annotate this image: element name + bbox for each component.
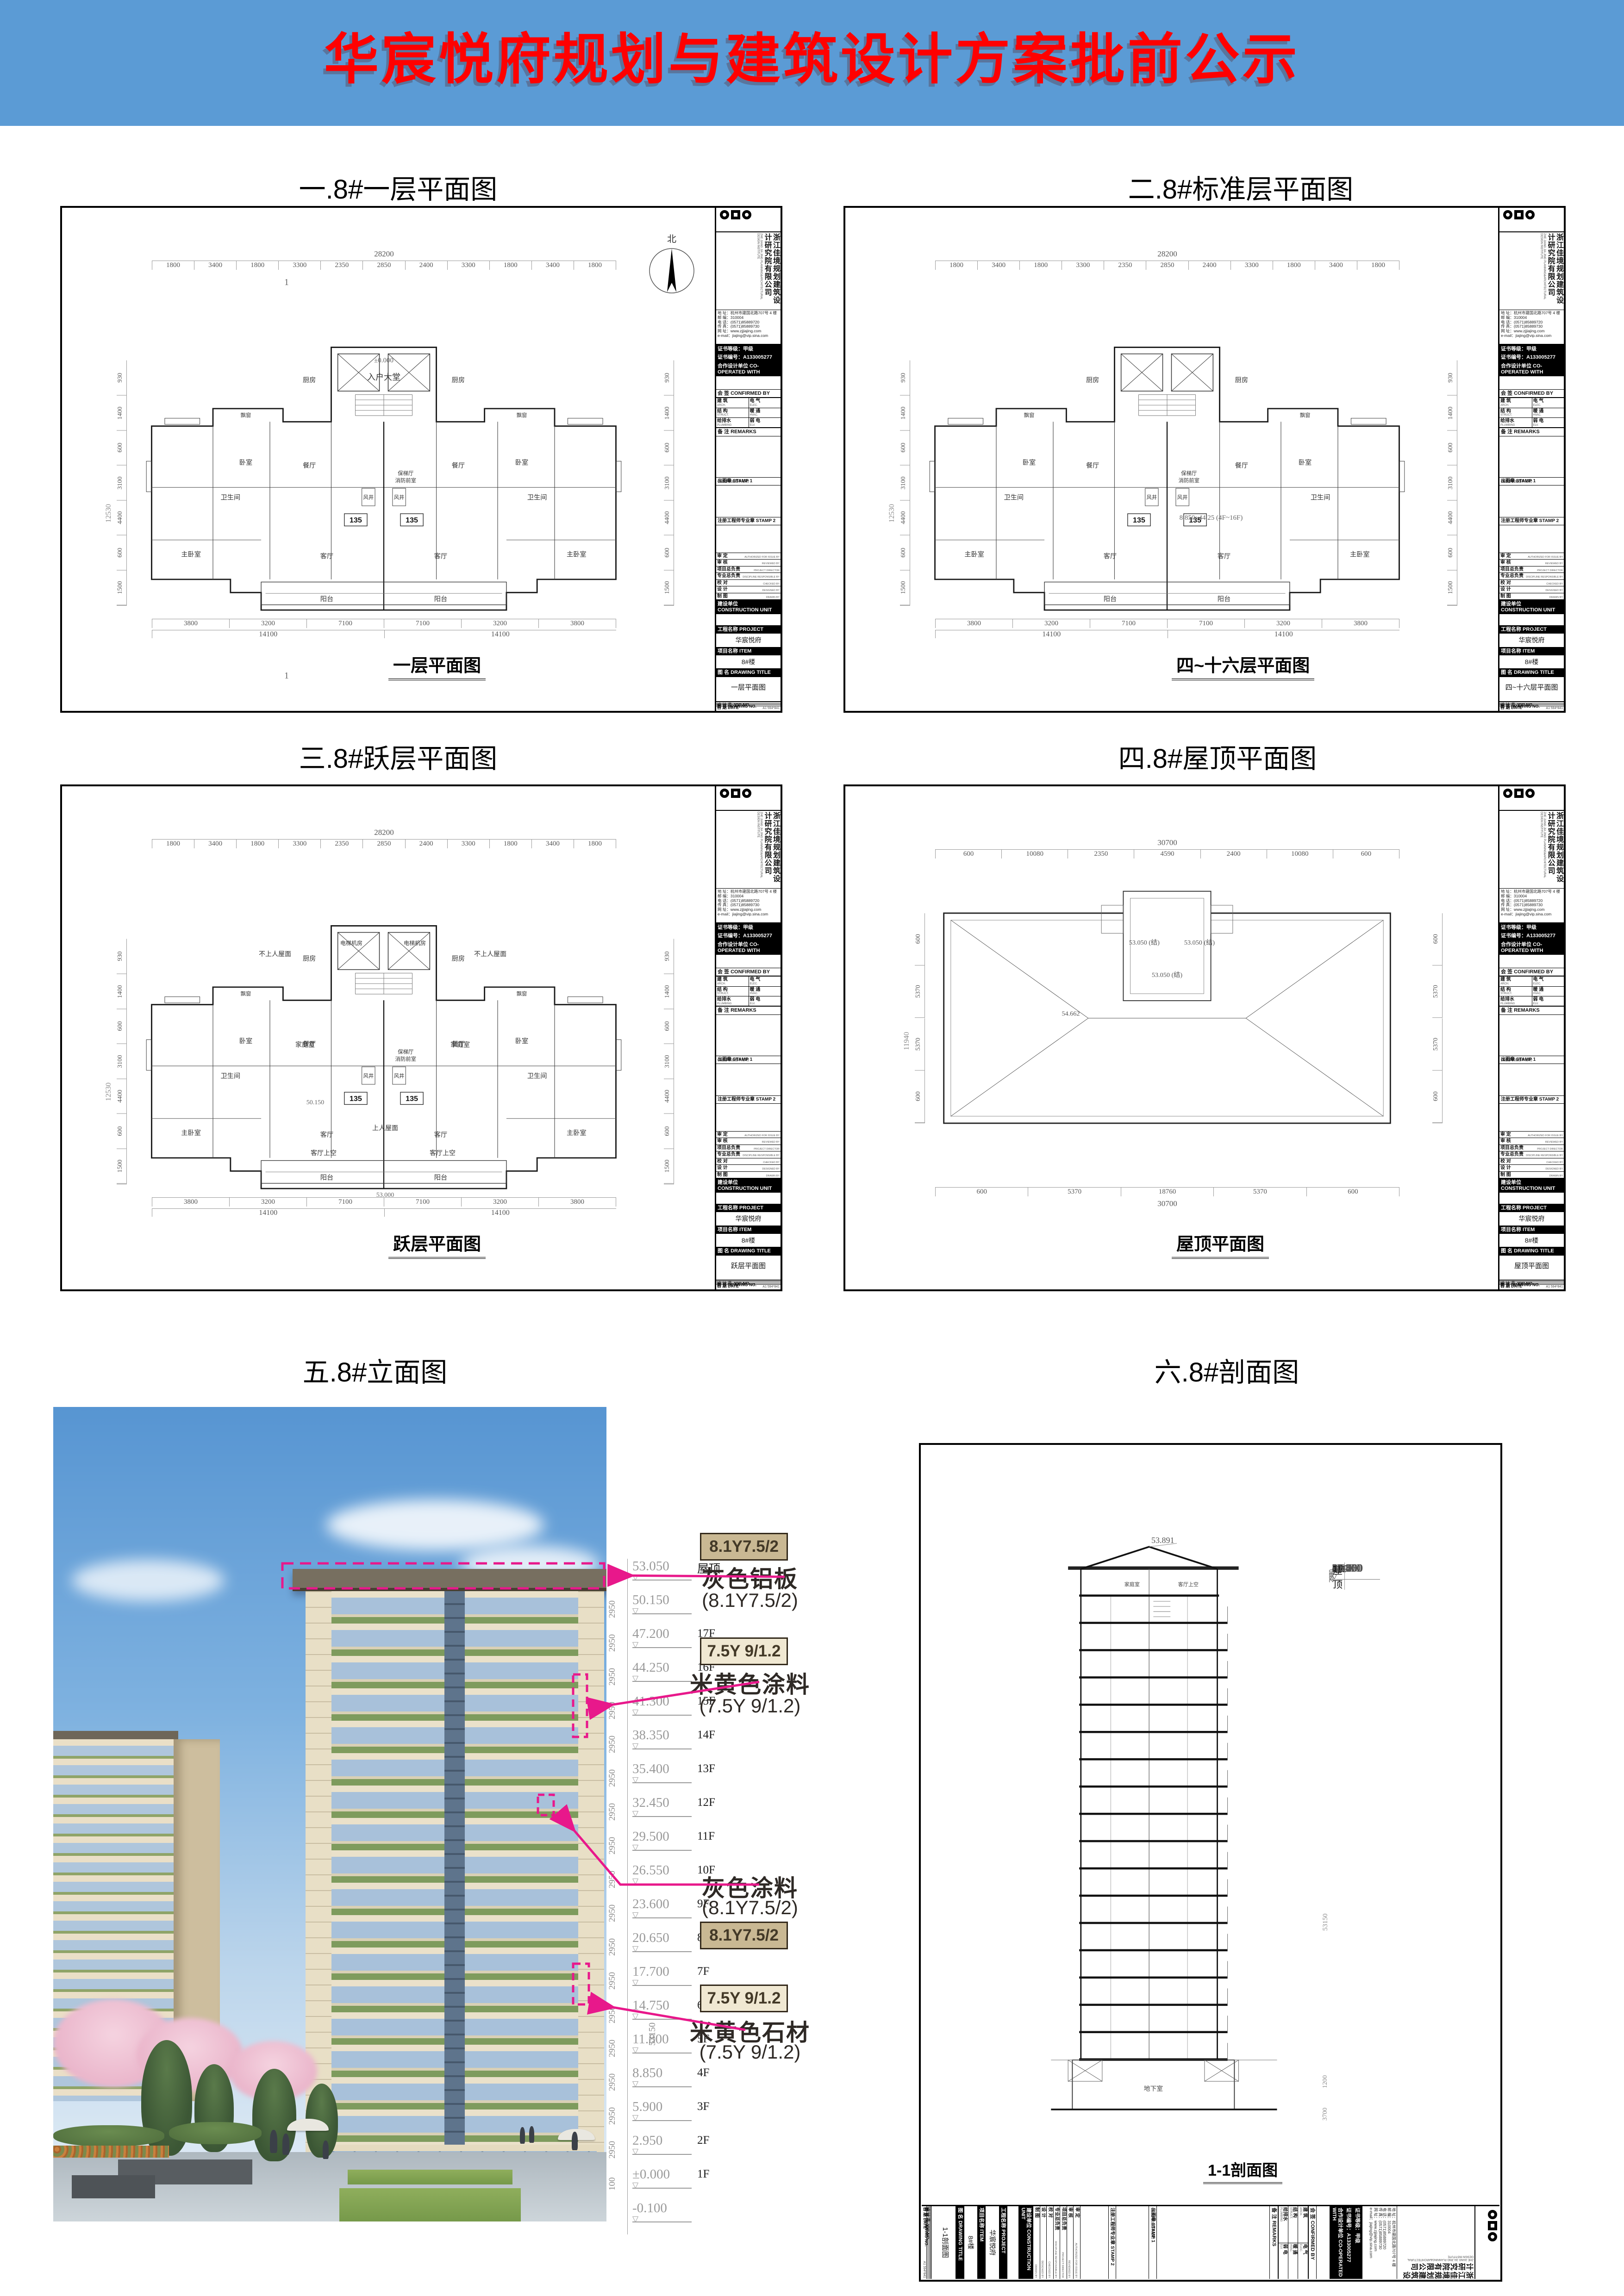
company-logo-icon [716, 208, 781, 232]
floor-height-dim: 2950 [607, 2099, 628, 2133]
company-name: 浙江佳境规划建筑设计研究院有限公司 ZHE JIANG JIA JING PLA… [1397, 2206, 1474, 2279]
material-code: (7.5Y 9/1.2) [667, 2041, 833, 2063]
person [270, 2130, 277, 2153]
floor-height-dim: 2950 [607, 1728, 628, 1761]
project-value: 华宸悦府 [1499, 1212, 1564, 1225]
drawing-title-value: 1-1剖面图 [931, 2206, 956, 2279]
title-block: 浙江佳境规划建筑设计研究院有限公司 ZHE JIANG JIA JING PLA… [1498, 208, 1564, 711]
approval-row: 设 计DESIGNED BY [716, 1165, 781, 1172]
approval-table: 审 定AUTHORIZED FOR ISSUE BY审 核REVIEWED BY… [1499, 1131, 1564, 1179]
level-value: 5.900 [632, 2099, 692, 2121]
elevator-machine-room: 电梯机房 [328, 939, 375, 947]
project-label: 工程名称 PROJECT [999, 2206, 1008, 2279]
coop-label: 合作设计单位 CO-OPERATED WITH [1499, 940, 1564, 955]
sheet-panel-2: 28200 1800340018003300235028502400330018… [843, 206, 1566, 713]
cert-grade: 证书等级：甲级 [1499, 345, 1564, 354]
approval-row: 设 计DESIGNED BY [1499, 586, 1564, 593]
confirm-cell: 暖 通HVAC. [749, 408, 781, 417]
floor-height-dim: 2950 [607, 1998, 628, 2032]
project-value: 华宸悦府 [986, 2206, 999, 2279]
approval-row: 设 计DESIGNED BY [1499, 1165, 1564, 1172]
sheet-footer: 设 计 号 JOB NO. 图 号 DRAWING NO. 日 期 DATE [716, 701, 781, 706]
confirm-cell: 给排水PLUMBING [1499, 417, 1532, 427]
svg-text:客厅上空: 客厅上空 [1178, 1581, 1199, 1587]
person [572, 2132, 578, 2150]
confirm-cell: 暖 通HVAC. [749, 986, 781, 996]
remarks-label: 备 注 REMARKS [1499, 428, 1564, 436]
remarks-label: 备 注 REMARKS [1269, 2206, 1278, 2279]
construction-unit-label: 建设单位 CONSTRUCTION UNIT [1499, 1178, 1564, 1193]
level-row: 2950 8.850 4F [607, 2066, 746, 2099]
floor-height-dim: 2950 [607, 1863, 628, 1897]
drawing-title-value: 跃层平面图 [716, 1256, 781, 1280]
approval-row: 审 核REVIEWED BY [716, 1138, 781, 1145]
floor-height-dim: 2950 [607, 1930, 628, 1964]
drawing-title-label: 图 名 DRAWING TITLE [956, 2206, 964, 2279]
section-drawing: 家庭室 客厅上空 地下室 [1004, 1514, 1328, 2137]
project-label: 工程名称 PROJECT [716, 1204, 781, 1213]
construction-unit-label: 建设单位 CONSTRUCTION UNIT [1018, 2206, 1033, 2279]
level-row: 2950 5.900 3F [607, 2099, 746, 2133]
no-access-roof: 不上人屋面 [245, 949, 305, 958]
approval-row: 审 核REVIEWED BY [1067, 2206, 1074, 2279]
page-title: 华宸悦府规划与建筑设计方案批前公示 [0, 0, 1624, 126]
cert-no: 证书编号：A133005277 [716, 353, 781, 362]
level-value: -0.100 [1332, 1562, 1380, 1580]
drawing-title-value: 四~十六层平面图 [1499, 677, 1564, 701]
company-contact: 地 址：杭州市建国北路707号 4 楼邮 编：310004 电 话：(0571)… [716, 310, 781, 345]
floor-tag: 12F [697, 1795, 715, 1809]
approval-row: 制 图DRAWN BY [1033, 2206, 1040, 2279]
confirm-cell: 给排水PLUMBING [716, 417, 749, 427]
roof-slab [293, 1569, 606, 1591]
remarks-label: 备 注 REMARKS [1499, 1006, 1564, 1015]
confirm-cell: 结 构STRUCT. [716, 408, 749, 417]
floor-height-dim: 2950 [607, 1660, 628, 1694]
sheet-panel-1: 28200 1800340018003300235028502400330018… [60, 206, 782, 713]
company-logo-icon [1499, 208, 1564, 232]
sheet-panel-6: 家庭室 客厅上空 地下室 53.891 2900 53.050 屋顶 2950 … [919, 1443, 1502, 2282]
floor-height-dim [607, 2201, 628, 2234]
approval-row: 审 定AUTHORIZED FOR ISSUE BY [716, 1132, 781, 1139]
floor-tag: 13F [697, 1761, 715, 1775]
confirm-cell: 弱 电ELV. [1532, 996, 1564, 1006]
cloud [326, 1500, 544, 1550]
rotated-title-block: 浙江佳境规划建筑设计研究院有限公司 ZHE JIANG JIA JING PLA… [922, 2205, 1499, 2279]
item-value: 8#楼 [1499, 655, 1564, 668]
approval-row: 制 图DRAWN BY [1499, 593, 1564, 600]
peak-level: 53.891 [1151, 1536, 1174, 1545]
level-row: 2950 29.500 11F [607, 1829, 746, 1863]
project-label: 工程名称 PROJECT [1499, 625, 1564, 634]
title-block: 浙江佳境规划建筑设计研究院有限公司 ZHE JIANG JIA JING PLA… [715, 208, 781, 711]
dim-chain-top: 1800340018003300235028502400330018003400… [152, 261, 616, 270]
level-value: 20.650 [632, 1930, 692, 1952]
level-row: 100 ±0.000 1F [607, 2167, 746, 2201]
project-value: 华宸悦府 [716, 1212, 781, 1225]
level-value: 17.700 [632, 1964, 692, 1986]
svg-text:地下室: 地下室 [1144, 2084, 1163, 2092]
section-cut-mark: 1 [280, 671, 294, 681]
hedge [169, 2122, 262, 2144]
cloud [72, 1560, 225, 1601]
no-access-roof: 不上人屋面 [460, 949, 520, 958]
item-label: 项目名称 ITEM [1499, 647, 1564, 656]
section-title-6: 六.8#剖面图 [1042, 1350, 1412, 1389]
approval-row: 审 定AUTHORIZED FOR ISSUE BY [716, 553, 781, 560]
approval-table: 审 定AUTHORIZED FOR ISSUE BY审 核REVIEWED BY… [1499, 553, 1564, 600]
floor-height-dim: 2950 [607, 1626, 628, 1660]
notice-poster: 华宸悦府规划与建筑设计方案批前公示 一.8#一层平面图 二.8#标准层平面图 三… [0, 0, 1624, 2296]
confirm-cell: 建 筑ARCH. [1499, 976, 1532, 986]
construction-unit-label: 建设单位 CONSTRUCTION UNIT [716, 1178, 781, 1193]
north-arrow-icon: 北 [643, 231, 703, 300]
approval-row: 校 对CHECKED BY [1499, 580, 1564, 587]
access-roof: 上人屋面 [348, 1123, 422, 1132]
company-name: 浙江佳境规划建筑设计研究院有限公司 ZHE JIANG JIA JING PLA… [716, 811, 781, 889]
stamp2-label: 注册工程师专业章 STAMP 2 [716, 517, 781, 525]
confirm-cell: 给排水PLUMBING [1499, 996, 1532, 1006]
total-height-dim: 53150 [1322, 1875, 1330, 1931]
project-label: 工程名称 PROJECT [1499, 1204, 1564, 1213]
confirm-cell: 电 气ELEC. [749, 398, 781, 407]
construction-unit-label: 建设单位 CONSTRUCTION UNIT [1499, 600, 1564, 614]
approval-row: 专业总负责DISCIPLINE RESPONSIBLE BY [716, 1151, 781, 1158]
cert-grade: 证书等级：甲级 [716, 345, 781, 354]
family-room: 家庭室 [282, 1040, 328, 1049]
material-code: (7.5Y 9/1.2) [667, 1695, 833, 1717]
basement-dim: 1200 [1322, 2060, 1329, 2088]
approval-row: 校 对CHECKED BY [716, 1158, 781, 1165]
level-row: 2950 38.350 14F [607, 1728, 746, 1761]
title-block: 浙江佳境规划建筑设计研究院有限公司 ZHE JIANG JIA JING PLA… [922, 2205, 1499, 2279]
confirm-cell: 结 构STRUCT. [1499, 986, 1532, 996]
level-53000: 53.000 [348, 1192, 422, 1199]
dim-total-left: 12530 [105, 448, 113, 523]
section-levels: 2900 53.050 屋顶 2950 50.150 2950 47.200 1… [1328, 1562, 1495, 2109]
color-swatch-gray: 8.1Y7.5/2 [700, 1533, 788, 1561]
item-value: 8#楼 [716, 655, 781, 668]
cert-grade: 证书等级：甲级 [1499, 923, 1564, 932]
coop-label: 合作设计单位 CO-OPERATED WITH [1330, 2206, 1344, 2279]
person [529, 2126, 534, 2143]
level-value: 8.850 [632, 2066, 692, 2087]
floor-height-dim: 2950 [607, 1829, 628, 1863]
construction-unit-label: 建设单位 CONSTRUCTION UNIT [716, 600, 781, 614]
material-code: (8.1Y7.5/2) [667, 1897, 833, 1919]
stamp2-label: 注册工程师专业章 STAMP 2 [1499, 517, 1564, 525]
project-value: 华宸悦府 [716, 634, 781, 647]
person [520, 2127, 525, 2144]
stamp1-label: 出图章 STAMP 1 (未盖本院出图章无效) [1149, 2206, 1157, 2279]
coop-label: 合作设计单位 CO-OPERATED WITH [716, 940, 781, 955]
approval-table: 审 定AUTHORIZED FOR ISSUE BY审 核REVIEWED BY… [716, 1131, 781, 1179]
confirm-label: 会 签 CONFIRMED BY [1308, 2206, 1317, 2279]
living-void: 客厅上空 [296, 1148, 351, 1157]
confirm-cell: 弱 电ELV. [1532, 417, 1564, 427]
project-label: 工程名称 PROJECT [716, 625, 781, 634]
level-row: 2950 32.450 12F [607, 1795, 746, 1829]
section-cut-mark: 1 [280, 277, 294, 288]
drawing-title-value: 屋顶平面图 [1499, 1256, 1564, 1280]
level-value: -0.100 [632, 2201, 692, 2222]
stamp1-label: 出图章 STAMP 1 (未盖本院出图章无效) [716, 1056, 781, 1064]
floor-height-dim: 2900 [607, 1559, 628, 1593]
company-name: 浙江佳境规划建筑设计研究院有限公司 ZHE JIANG JIA JING PLA… [716, 232, 781, 310]
item-value: 8#楼 [716, 1234, 781, 1247]
hedge [53, 2125, 164, 2147]
drawing-title-label: 图 名 DRAWING TITLE [716, 668, 781, 677]
elevation-photo [53, 1407, 606, 2221]
company-logo-icon [1499, 786, 1564, 811]
confirm-cell: 弱 电ELV. [1279, 2243, 1288, 2279]
company-name: 浙江佳境规划建筑设计研究院有限公司 ZHE JIANG JIA JING PLA… [1499, 811, 1564, 889]
confirm-cell: 暖 通HVAC. [1532, 986, 1564, 996]
right-pier [578, 1591, 604, 2145]
remarks-label: 备 注 REMARKS [716, 428, 781, 436]
svg-text:家庭室: 家庭室 [1124, 1581, 1140, 1587]
confirm-cell: 结 构STRUCT. [1288, 2206, 1298, 2243]
floor-height-dim: 2950 [607, 1694, 628, 1728]
color-swatch-beige: 7.5Y 9/1.2 [700, 1637, 788, 1665]
dim-chain-left: 9301400600310044006001500 [117, 361, 127, 606]
drawing-title-label: 图 名 DRAWING TITLE [1499, 668, 1564, 677]
approval-row: 项目总负责PROJECT DIRECTOR [1499, 1145, 1564, 1152]
confirm-cell: 建 筑ARCH. [716, 398, 749, 407]
pit-dim: 3700 [1322, 2093, 1329, 2121]
approval-row: 审 定AUTHORIZED FOR ISSUE BY [1499, 1132, 1564, 1139]
approval-row: 专业总负责DISCIPLINE RESPONSIBLE BY [716, 573, 781, 580]
confirm-grid: 建 筑ARCH.电 气ELEC.结 构STRUCT.暖 通HVAC.给排水PLU… [716, 976, 781, 1006]
coop-label: 合作设计单位 CO-OPERATED WITH [716, 362, 781, 376]
stamp2-label: 注册工程师专业章 STAMP 2 [1108, 2206, 1117, 2279]
lawn [348, 2170, 512, 2184]
lawn [339, 2188, 521, 2221]
confirm-label: 会 签 CONFIRMED BY [716, 968, 781, 977]
confirm-cell: 建 筑ARCH. [1499, 398, 1532, 407]
approval-row: 校 对CHECKED BY [716, 580, 781, 587]
company-name: 浙江佳境规划建筑设计研究院有限公司 ZHE JIANG JIA JING PLA… [1499, 232, 1564, 310]
floor-tag: 2F [697, 2133, 709, 2147]
level-zero: ±0.000 [347, 357, 421, 365]
confirm-cell: 弱 电ELV. [749, 996, 781, 1006]
dim-total-top: 28200 [152, 249, 616, 259]
level-value: 38.350 [632, 1728, 692, 1749]
floor-height-dim: 2950 [607, 2066, 628, 2099]
approval-row: 项目总负责PROJECT DIRECTOR [716, 1145, 781, 1152]
item-label: 项目名称 ITEM [716, 1226, 781, 1234]
floor-tag: 7F [697, 1964, 709, 1978]
confirm-grid: 建 筑ARCH.电 气ELEC.结 构STRUCT.暖 通HVAC.给排水PLU… [1499, 976, 1564, 1006]
stamp2-label: 注册工程师专业章 STAMP 2 [716, 1095, 781, 1104]
floor-height-dim: 2950 [607, 2133, 628, 2167]
confirm-cell: 结 构STRUCT. [716, 986, 749, 996]
coop-label: 合作设计单位 CO-OPERATED WITH [1499, 362, 1564, 376]
confirm-cell: 给排水PLUMBING [1279, 2206, 1288, 2243]
confirm-cell: 暖 通HVAC. [1532, 408, 1564, 417]
living-void: 客厅上空 [415, 1148, 470, 1157]
level-row: -0.100 [607, 2201, 746, 2234]
title-block: 浙江佳境规划建筑设计研究院有限公司 ZHE JIANG JIA JING PLA… [1498, 786, 1564, 1289]
approval-row: 项目总负责PROJECT DIRECTOR [1499, 566, 1564, 573]
dim-chain-bottom: 380032007100710032003800 [152, 619, 616, 628]
project-value: 华宸悦府 [1499, 634, 1564, 647]
planter-box [72, 2175, 155, 2198]
approval-row: 专业总负责DISCIPLINE RESPONSIBLE BY [1053, 2206, 1060, 2279]
confirm-grid: 建 筑ARCH.电 气ELEC.结 构STRUCT.暖 通HVAC.给排水PLU… [716, 398, 781, 428]
confirm-grid: 建 筑ARCH.电 气ELEC.结 构STRUCT.暖 通HVAC.给排水PLU… [1278, 2206, 1308, 2279]
approval-row: 校 对CHECKED BY [1046, 2206, 1053, 2279]
approval-row: 设 计DESIGNED BY [716, 586, 781, 593]
family-room: 家庭室 [437, 1040, 483, 1049]
confirm-cell: 建 筑ARCH. [1298, 2206, 1308, 2243]
sheet-footer: 设 计 号 JOB NO. 图 号 DRAWING NO. 日 期 DATE [1499, 701, 1564, 706]
section-title-5: 五.8#立面图 [199, 1350, 551, 1389]
confirm-grid: 建 筑ARCH.电 气ELEC.结 构STRUCT.暖 通HVAC.给排水PLU… [1499, 398, 1564, 428]
level-value: 35.400 [632, 1761, 692, 1783]
level-row: 2950 2.950 2F [607, 2133, 746, 2167]
sheet-panel-3: 28200 1800340018003300235028502400330018… [60, 784, 782, 1291]
stamp1-label: 出图章 STAMP 1 (未盖本院出图章无效) [716, 477, 781, 485]
approval-table: 审 定AUTHORIZED FOR ISSUE BY审 核REVIEWED BY… [716, 553, 781, 600]
material-code: (8.1Y7.5/2) [667, 1589, 833, 1612]
floor-height-dim: 2950 [607, 1964, 628, 1998]
dim-chain-right: 9301400600310044006001500 [664, 361, 674, 606]
floor-height-dim: 2950 [607, 1897, 628, 1930]
std-floor-range: 8.850~44.25 (4F~16F) [1151, 514, 1271, 522]
svg-text:北: 北 [667, 234, 676, 244]
item-label: 项目名称 ITEM [977, 2206, 986, 2279]
level-50150: 50.150 [290, 1099, 341, 1107]
confirm-cell: 电 气ELEC. [1298, 2243, 1308, 2279]
level-value: 29.500 [632, 1829, 692, 1851]
color-swatch-gray: 8.1Y7.5/2 [700, 1922, 788, 1949]
flower-bed [53, 2146, 169, 2158]
confirm-cell: 弱 电ELV. [749, 417, 781, 427]
confirm-label: 会 签 CONFIRMED BY [1499, 968, 1564, 977]
confirm-label: 会 签 CONFIRMED BY [1499, 389, 1564, 398]
color-swatch-beige: 7.5Y 9/1.2 [700, 1985, 788, 2012]
company-logo-icon [716, 786, 781, 811]
remarks-label: 备 注 REMARKS [716, 1006, 781, 1015]
section-title-4: 四.8#屋顶平面图 [1009, 737, 1426, 776]
level-value: 2.950 [632, 2133, 692, 2155]
approval-row: 审 核REVIEWED BY [716, 560, 781, 566]
title-block-slot: 浙江佳境规划建筑设计研究院有限公司 ZHE JIANG JIA JING PLA… [715, 786, 781, 1289]
sheet-panel-4: 30700 6001008023504590240010080600 60053… [843, 784, 1566, 1291]
level-value: 32.450 [632, 1795, 692, 1817]
item-label: 项目名称 ITEM [716, 647, 781, 656]
approval-row: 制 图DRAWN BY [716, 593, 781, 600]
section-title-2: 二.8#标准层平面图 [1009, 168, 1472, 206]
approval-row: 专业总负责DISCIPLINE RESPONSIBLE BY [1499, 573, 1564, 580]
elevator-machine-room: 电梯机房 [392, 939, 438, 947]
stamp2-label: 注册工程师专业章 STAMP 2 [1499, 1095, 1564, 1104]
drawing-title-label: 图 名 DRAWING TITLE [1499, 1247, 1564, 1256]
approval-table: 审 定AUTHORIZED FOR ISSUE BY审 核REVIEWED BY… [1033, 2206, 1081, 2279]
approval-row: 审 定AUTHORIZED FOR ISSUE BY [1499, 553, 1564, 560]
approval-row: 制 图DRAWN BY [716, 1172, 781, 1179]
floor-height-dim: 2950 [607, 1795, 628, 1829]
floor-tag: 1F [697, 2167, 709, 2181]
company-contact: 地 址：杭州市建国北路707号 4 楼邮 编：310004 电 话：(0571)… [1499, 310, 1564, 345]
approval-row: 审 核REVIEWED BY [1499, 560, 1564, 566]
dim-totals-bottom: 1410014100 [152, 630, 616, 638]
company-logo-icon [1474, 2206, 1499, 2279]
confirm-label: 会 签 CONFIRMED BY [716, 389, 781, 398]
person [282, 2134, 289, 2155]
cert-no: 证书编号：A133005277 [716, 932, 781, 940]
item-value: 8#楼 [1499, 1234, 1564, 1247]
floor-tag: 4F [697, 2066, 709, 2079]
item-value: 8#楼 [964, 2206, 977, 2279]
floor-height-dim: 100 [607, 2167, 628, 2201]
approval-row: 项目总负责PROJECT DIRECTOR [716, 566, 781, 573]
item-label: 项目名称 ITEM [1499, 1226, 1564, 1234]
confirm-cell: 电 气ELEC. [749, 976, 781, 986]
sheet-footer: 设 计 号 JOB NO. 图 号 DRAWING NO. 日 期 DATE [1499, 1280, 1564, 1285]
stamp1-label: 出图章 STAMP 1 (未盖本院出图章无效) [1499, 1056, 1564, 1064]
confirm-cell: 建 筑ARCH. [716, 976, 749, 986]
cert-no: 证书编号：A133005277 [1499, 353, 1564, 362]
approval-row: 制 图DRAWN BY [1499, 1172, 1564, 1179]
title-block: 浙江佳境规划建筑设计研究院有限公司 ZHE JIANG JIA JING PLA… [715, 786, 781, 1289]
total-height-dim: 53150 [647, 1981, 658, 2046]
company-contact: 地 址：杭州市建国北路707号 4 楼邮 编：310004 电 话：(0571)… [1499, 889, 1564, 923]
person [323, 2140, 329, 2159]
core-glazing [444, 1591, 465, 2145]
approval-row: 项目总负责PROJECT DIRECTOR [1060, 2206, 1067, 2279]
stamp1-label: 出图章 STAMP 1 (未盖本院出图章无效) [1499, 477, 1564, 485]
confirm-cell: 结 构STRUCT. [1499, 408, 1532, 417]
confirm-cell: 电 气ELEC. [1532, 976, 1564, 986]
approval-row: 专业总负责DISCIPLINE RESPONSIBLE BY [1499, 1151, 1564, 1158]
cert-no: 证书编号：A133005277 [1499, 932, 1564, 940]
approval-row: 审 核REVIEWED BY [1499, 1138, 1564, 1145]
main-tower [306, 1569, 604, 2215]
floor-height-dim: 2950 [607, 2032, 628, 2066]
floor-height-dim: 2950 [607, 1593, 628, 1626]
cert-grade: 证书等级：甲级 [716, 923, 781, 932]
company-contact: 地 址：杭州市建国北路707号 4 楼邮 编：310004 电 话：(0571)… [1362, 2206, 1397, 2279]
header-banner: 华宸悦府规划与建筑设计方案批前公示 [0, 0, 1624, 126]
approval-row: 设 计DESIGNED BY [1040, 2206, 1047, 2279]
title-block-slot: 浙江佳境规划建筑设计研究院有限公司 ZHE JIANG JIA JING PLA… [1498, 786, 1564, 1289]
company-contact: 地 址：杭州市建国北路707号 4 楼邮 编：310004 电 话：(0571)… [716, 889, 781, 923]
level-value: 47.200 [632, 1626, 692, 1648]
sheet-footer: 设 计 号 JOB NO. 图 号 DRAWING NO. 日 期 DATE [926, 2206, 931, 2279]
level-row: 2950 35.400 13F [607, 1761, 746, 1795]
floor-tag: 14F [697, 1728, 715, 1742]
floor-height-dim: 2950 [607, 1761, 628, 1795]
title-block-slot: 浙江佳境规划建筑设计研究院有限公司 ZHE JIANG JIA JING PLA… [715, 208, 781, 711]
section-title-3: 三.8#跃层平面图 [213, 737, 583, 776]
confirm-cell: 给排水PLUMBING [716, 996, 749, 1006]
level-value: ±0.000 [632, 2167, 692, 2189]
section-title-1: 一.8#一层平面图 [213, 168, 583, 206]
approval-row: 校 对CHECKED BY [1499, 1158, 1564, 1165]
entry-hall-label: 入户大堂 [347, 371, 421, 383]
cert-no: 证书编号：A133005277 [1344, 2206, 1353, 2279]
drawing-title-value: 一层平面图 [716, 677, 781, 701]
sheet-footer: 设 计 号 JOB NO. 图 号 DRAWING NO. 日 期 DATE [716, 1280, 781, 1285]
floor-tag: 11F [697, 1829, 715, 1843]
confirm-cell: 暖 通HVAC. [1288, 2243, 1298, 2279]
confirm-cell: 电 气ELEC. [1532, 398, 1564, 407]
title-block-slot: 浙江佳境规划建筑设计研究院有限公司 ZHE JIANG JIA JING PLA… [1498, 208, 1564, 711]
floor-tag: 3F [697, 2099, 709, 2113]
drawing-title-label: 图 名 DRAWING TITLE [716, 1247, 781, 1256]
